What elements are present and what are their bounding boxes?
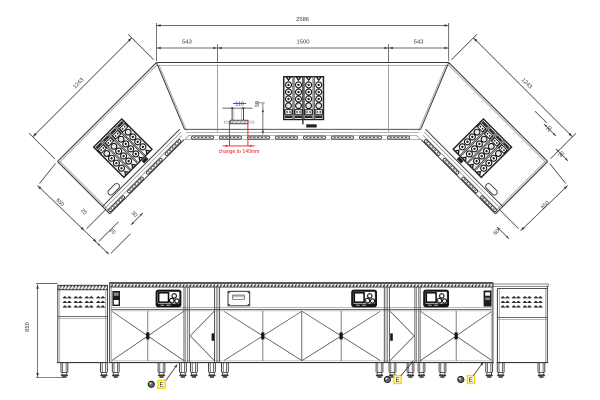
- svg-text:543: 543: [414, 40, 424, 46]
- svg-text:20: 20: [79, 208, 87, 216]
- svg-text:2586: 2586: [296, 17, 309, 23]
- svg-text:543: 543: [182, 40, 192, 46]
- svg-text:650: 650: [540, 200, 551, 211]
- svg-text:20: 20: [108, 228, 116, 236]
- svg-text:850: 850: [25, 322, 31, 332]
- svg-text:1243: 1243: [72, 77, 85, 90]
- svg-text:650: 650: [54, 197, 65, 208]
- svg-text:30: 30: [130, 210, 138, 218]
- svg-text:50: 50: [255, 101, 261, 107]
- svg-text:change to 140mm: change to 140mm: [219, 149, 260, 155]
- svg-text:1243: 1243: [520, 77, 533, 90]
- svg-text:1500: 1500: [297, 40, 310, 46]
- svg-text:110: 110: [235, 102, 244, 108]
